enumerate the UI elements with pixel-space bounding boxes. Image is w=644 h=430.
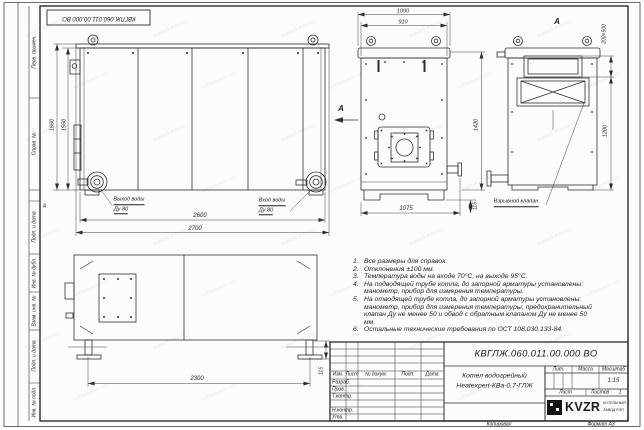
note-item: 5.На отводящей трубе котла, до запорной … xyxy=(353,296,595,326)
face-view-linework xyxy=(334,12,485,216)
margin-label-inv-dubl: Инв. № дубл. xyxy=(32,258,37,289)
note-number: 6. xyxy=(353,326,364,334)
outlet-water-label: Выход воды xyxy=(114,197,145,205)
note-number: 5. xyxy=(353,296,364,326)
lifting-lug-icon xyxy=(88,35,318,45)
note-item: 1.Все размеры для справок. xyxy=(353,258,595,266)
col-izm: Изм. xyxy=(333,373,344,378)
front-view-dimensions xyxy=(53,44,329,236)
zone-letter: А xyxy=(43,205,46,210)
title-doc-number: КВГЛЖ.060.011.00.000 ВО xyxy=(474,349,597,359)
outlet-flange-icon xyxy=(78,172,107,195)
kvzr-logo-text: KVZR xyxy=(565,401,600,414)
note-item: 6.Остальные технические требования по ОС… xyxy=(353,326,595,334)
bottom-view-dimensions xyxy=(88,341,330,387)
logo-pixel xyxy=(550,403,553,406)
inlet-dn-label: Ду 80 xyxy=(259,208,273,216)
kvzr-logo-sub1: КОТЕЛЬНЫЙ xyxy=(603,402,626,406)
dim-115-face-label: 115 xyxy=(473,202,478,210)
col-list: Лист xyxy=(346,373,359,378)
inlet-water-label: Вход воды xyxy=(259,198,286,206)
note-text: На отводящей трубе котла, до запорной ар… xyxy=(364,296,595,326)
scale-label: Масштаб xyxy=(602,367,625,372)
rear-view-linework xyxy=(487,37,614,206)
margin-label-vzam-inv: Взам. инв. № xyxy=(32,296,37,327)
section-arrow-a-label: А xyxy=(338,105,344,113)
scale-value: 1:15 xyxy=(608,378,620,384)
outlet-dn-label: Ду 80 xyxy=(114,207,128,215)
kvzr-logo-sub2: ЗАВОД РЭП xyxy=(603,409,624,413)
top-stamp-text: КВГЛЖ.060.011.00.000 ВО xyxy=(62,15,135,21)
sheets-value: 1 xyxy=(619,390,622,395)
dim-1420-label: 1420 xyxy=(474,119,480,131)
note-item: 3.Температура воды на входе 70°С, на вых… xyxy=(353,273,595,281)
margin-label-inv-podl: Инв. № подл. xyxy=(32,386,37,417)
note-number: 3. xyxy=(353,273,364,281)
view-a-title: А xyxy=(554,18,560,26)
note-number: 2. xyxy=(353,266,364,274)
logo-pixel xyxy=(556,408,559,411)
front-view-linework xyxy=(53,35,329,236)
technical-notes-list: 1.Все размеры для справок. 2.Отклонения … xyxy=(353,258,595,334)
section-arrow-icon xyxy=(334,117,358,123)
note-number: 1. xyxy=(353,258,364,266)
copied-label: Копировал xyxy=(487,422,512,427)
product-name-line1: Котел водогрейный xyxy=(462,374,527,381)
support-foot-icon xyxy=(77,340,322,359)
dim-1075-label: 1075 xyxy=(399,206,412,212)
dim-910-label: 910 xyxy=(398,20,407,26)
note-text: На подводящей трубе котла, до запорной а… xyxy=(364,281,595,296)
note-text: Все размеры для справок. xyxy=(364,258,595,266)
dim-1200-label: 1200 xyxy=(603,125,609,137)
explosion-valve-icon xyxy=(517,78,589,106)
dim-1550-label: 1550 xyxy=(62,119,68,131)
drawing-linework xyxy=(0,0,644,430)
col-sign: Подп. xyxy=(401,373,414,378)
inlet-flange-icon xyxy=(296,172,326,195)
dim-2300-label: 2300 xyxy=(190,376,203,382)
dim-2700-label: 2700 xyxy=(188,226,201,232)
dim-115-bottom-label: 115 xyxy=(320,367,325,375)
dim-200x500-label: 200×500 xyxy=(603,24,608,44)
note-item: 4.На подводящей трубе котла, до запорной… xyxy=(353,281,595,296)
note-text: Температура воды на входе 70°С, на выход… xyxy=(364,273,595,281)
kvzr-logo-icon xyxy=(547,400,562,415)
row-tcontrol: Т.контр. xyxy=(332,394,352,399)
margin-label-perv-primen: Перв. примен. xyxy=(32,35,37,68)
explosion-valve-callout: Взрывной клапан xyxy=(494,199,539,207)
margin-label-podp-data-2: Подп. и дата xyxy=(32,340,37,371)
col-date: Дата xyxy=(425,373,438,378)
lifting-lug-icon xyxy=(367,37,441,46)
lifting-lug-icon xyxy=(514,37,592,46)
lit-label: Лит. xyxy=(553,367,565,372)
dim-2600-label: 2600 xyxy=(193,213,206,219)
sheet-frame xyxy=(4,3,640,427)
col-doc: № докум. xyxy=(365,373,387,378)
note-text: Остальные технические требования по ОСТ … xyxy=(364,326,595,334)
face-view-dimensions xyxy=(358,12,485,216)
drawing-sheet: kotlam-kvz.rukotlam-kvz.rukotlam-kvz.ruk… xyxy=(0,0,644,430)
kvzr-logo: KVZR КОТЕЛЬНЫЙ ЗАВОД РЭП xyxy=(547,399,626,419)
format-label: Формат А3 xyxy=(587,422,614,427)
sheet-label: Лист xyxy=(559,390,572,395)
bottom-view-linework xyxy=(65,255,330,387)
row-ncontrol: Н.контр. xyxy=(332,408,353,413)
dim-1660-label: 1660 xyxy=(50,119,56,131)
margin-label-podp-data-1: Подп. и дата xyxy=(32,211,37,242)
row-approved: Утв. xyxy=(332,415,343,420)
row-developed: Разраб. xyxy=(332,380,350,385)
mass-label: Масса xyxy=(578,367,593,372)
sheets-label: Листов xyxy=(591,390,609,395)
margin-label-sprav-no: Справ. № xyxy=(32,133,37,156)
product-name-line2: Heatexpert-КВа-0,7-ГЛЖ xyxy=(456,384,532,391)
note-number: 4. xyxy=(353,281,364,296)
row-checked: Пров. xyxy=(332,387,345,392)
dim-1000-label: 1000 xyxy=(397,9,409,15)
